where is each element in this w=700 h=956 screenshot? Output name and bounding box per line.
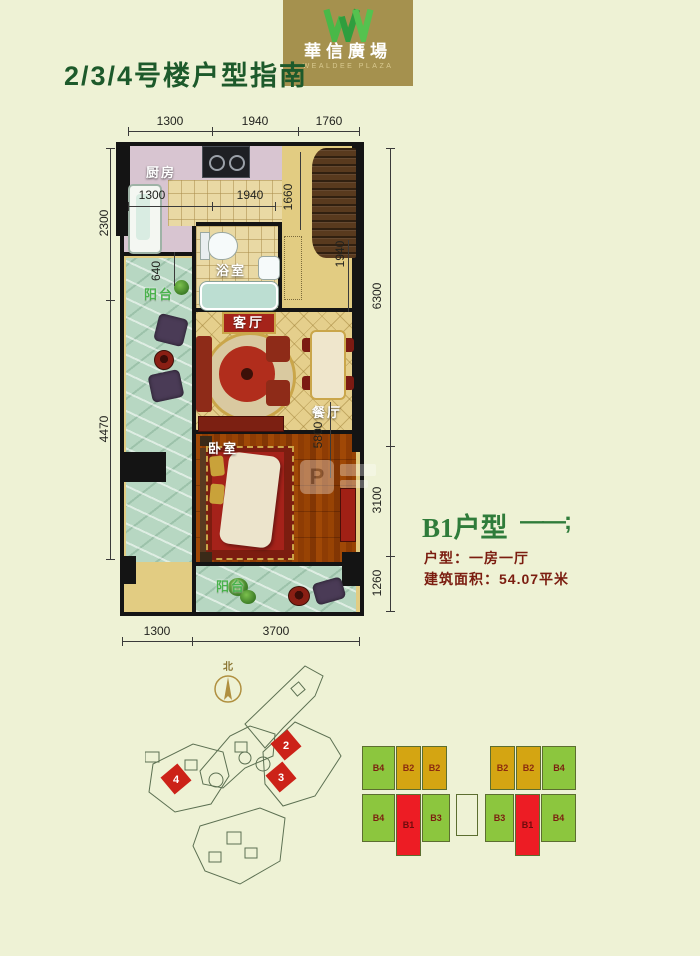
unit-type-line: 户型：一房一厅 (424, 548, 529, 568)
dim-kitchen-b: 1940 (228, 188, 272, 202)
blanket (219, 451, 282, 549)
dim-bottom-2: 3700 (254, 624, 298, 638)
armchair (266, 336, 290, 362)
dim-right-3: 1260 (370, 561, 384, 605)
dim-foyer: 1660 (281, 175, 295, 219)
floor-plan: 客厅 厨房 (116, 140, 368, 618)
dim-line-right (390, 148, 391, 612)
dim-kitchen-a: 1300 (130, 188, 174, 202)
pillow (209, 483, 225, 504)
dim-line-bottom (122, 641, 360, 642)
building-4-label: 4 (173, 774, 180, 786)
dim-top-1: 1300 (148, 114, 192, 128)
page-title: 2/3/4号楼户型指南 (64, 54, 308, 93)
balcony-table (154, 350, 174, 370)
key-unit: B4 (542, 746, 576, 790)
brand-w-icon (283, 6, 413, 42)
watermark: P (300, 458, 380, 498)
balcony-table (288, 586, 310, 606)
balcony-left-floor (126, 258, 192, 562)
nightstand (200, 552, 212, 562)
armchair (266, 380, 290, 406)
dim-right-1: 6300 (370, 274, 384, 318)
shoe-cabinet (284, 236, 302, 300)
site-plan: 北 2 3 4 (145, 656, 350, 896)
key-unit: B4 (362, 746, 395, 790)
north-arrow-icon (224, 677, 232, 700)
bathtub (200, 282, 278, 310)
key-unit: B4 (541, 794, 576, 842)
balcony-bottom-label: 阳台 (216, 576, 246, 595)
key-unit: B3 (422, 794, 450, 842)
key-unit: B1 (396, 794, 421, 856)
key-unit: B4 (362, 794, 395, 842)
bathroom-label: 浴室 (216, 260, 246, 279)
key-unit: B2 (396, 746, 421, 790)
toilet (208, 232, 238, 260)
floor-key: B4 B2 B2 B2 B2 B4 B4 B1 B3 B3 B1 B4 (362, 742, 576, 858)
kitchen-tiles (168, 180, 282, 226)
key-unit: B2 (516, 746, 541, 790)
kitchen-label: 厨房 (146, 162, 176, 181)
living-label: 客厅 (233, 315, 265, 330)
key-core (456, 794, 478, 836)
pillow (209, 455, 225, 476)
north-label: 北 (223, 660, 233, 673)
unit-title-dash: ——; (520, 508, 570, 536)
key-unit: B3 (485, 794, 514, 842)
building-3-label: 3 (278, 772, 284, 784)
tv-cabinet (198, 416, 284, 432)
watermark-logo: P (300, 460, 334, 494)
unit-area-line: 建筑面积：54.07平米 (424, 569, 569, 589)
living-label-banner: 客厅 (222, 312, 276, 334)
plant (174, 280, 189, 295)
page: 華信廣場 WEALDEE PLAZA 2/3/4号楼户型指南 1300 1940… (0, 0, 700, 956)
bedroom-label: 卧室 (208, 438, 238, 457)
bath-sink (258, 256, 280, 280)
unit-title: B1户型 (422, 506, 508, 545)
dim-top-3: 1760 (307, 114, 351, 128)
dim-top-2: 1940 (233, 114, 277, 128)
dim-left-2: 4470 (97, 407, 111, 451)
sofa (196, 336, 212, 412)
compass: 北 (215, 660, 241, 702)
dim-kitchen-c: 640 (149, 249, 163, 293)
dining-table (310, 330, 346, 400)
dim-left-1: 2300 (97, 201, 111, 245)
building-2-label: 2 (283, 740, 289, 752)
dim-bottom-1: 1300 (135, 624, 179, 638)
key-unit: B2 (490, 746, 515, 790)
shaft-block (120, 452, 166, 482)
key-unit: B1 (515, 794, 540, 856)
dim-line-top (128, 131, 360, 132)
key-unit: B2 (422, 746, 447, 790)
highlighted-buildings: 2 3 4 (161, 730, 302, 795)
stove (202, 146, 250, 178)
dim-hall: 1940 (333, 232, 347, 276)
dim-living: 5800 (311, 413, 325, 457)
